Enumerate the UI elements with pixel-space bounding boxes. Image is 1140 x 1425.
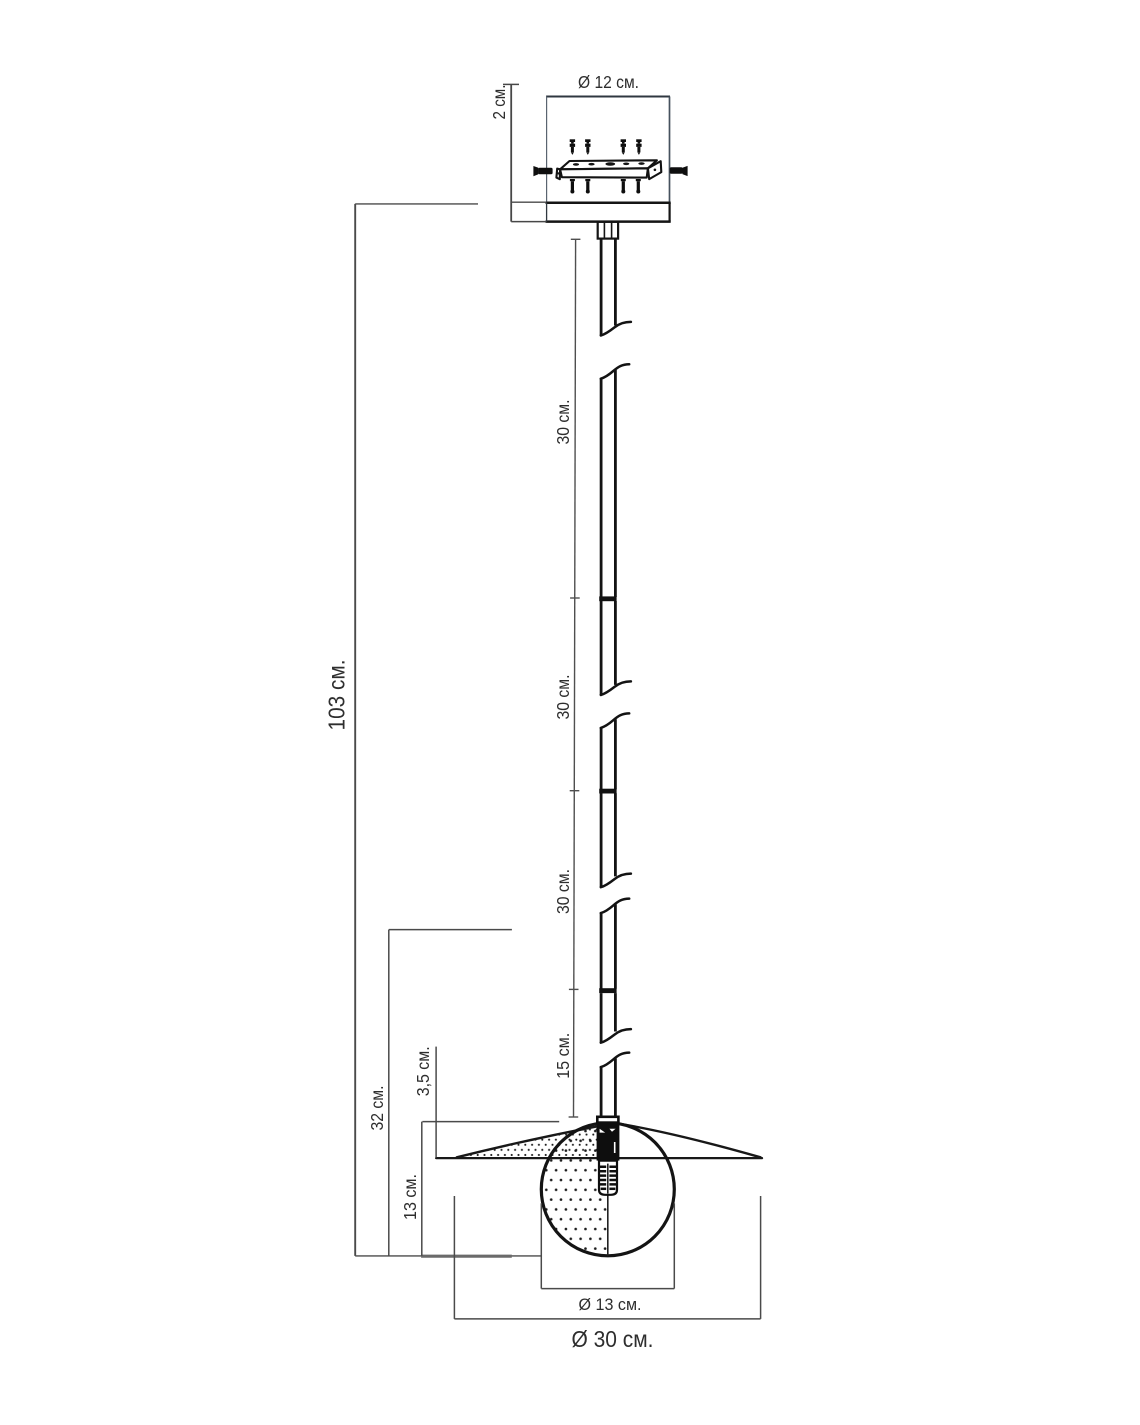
svg-text:15 см.: 15 см. <box>553 1033 573 1079</box>
svg-text:3,5 см.: 3,5 см. <box>413 1046 433 1096</box>
svg-text:30 см.: 30 см. <box>553 675 573 720</box>
svg-text:103 см.: 103 см. <box>324 660 350 731</box>
svg-text:Ø 12 см.: Ø 12 см. <box>578 72 639 92</box>
svg-text:32 см.: 32 см. <box>367 1086 387 1131</box>
svg-text:Ø 30 см.: Ø 30 см. <box>572 1326 654 1352</box>
svg-text:13 см.: 13 см. <box>400 1174 420 1220</box>
svg-text:30 см.: 30 см. <box>553 400 573 445</box>
svg-text:Ø 13 см.: Ø 13 см. <box>579 1295 642 1314</box>
svg-text:30 см.: 30 см. <box>553 869 573 914</box>
svg-text:2 см.: 2 см. <box>489 85 509 120</box>
